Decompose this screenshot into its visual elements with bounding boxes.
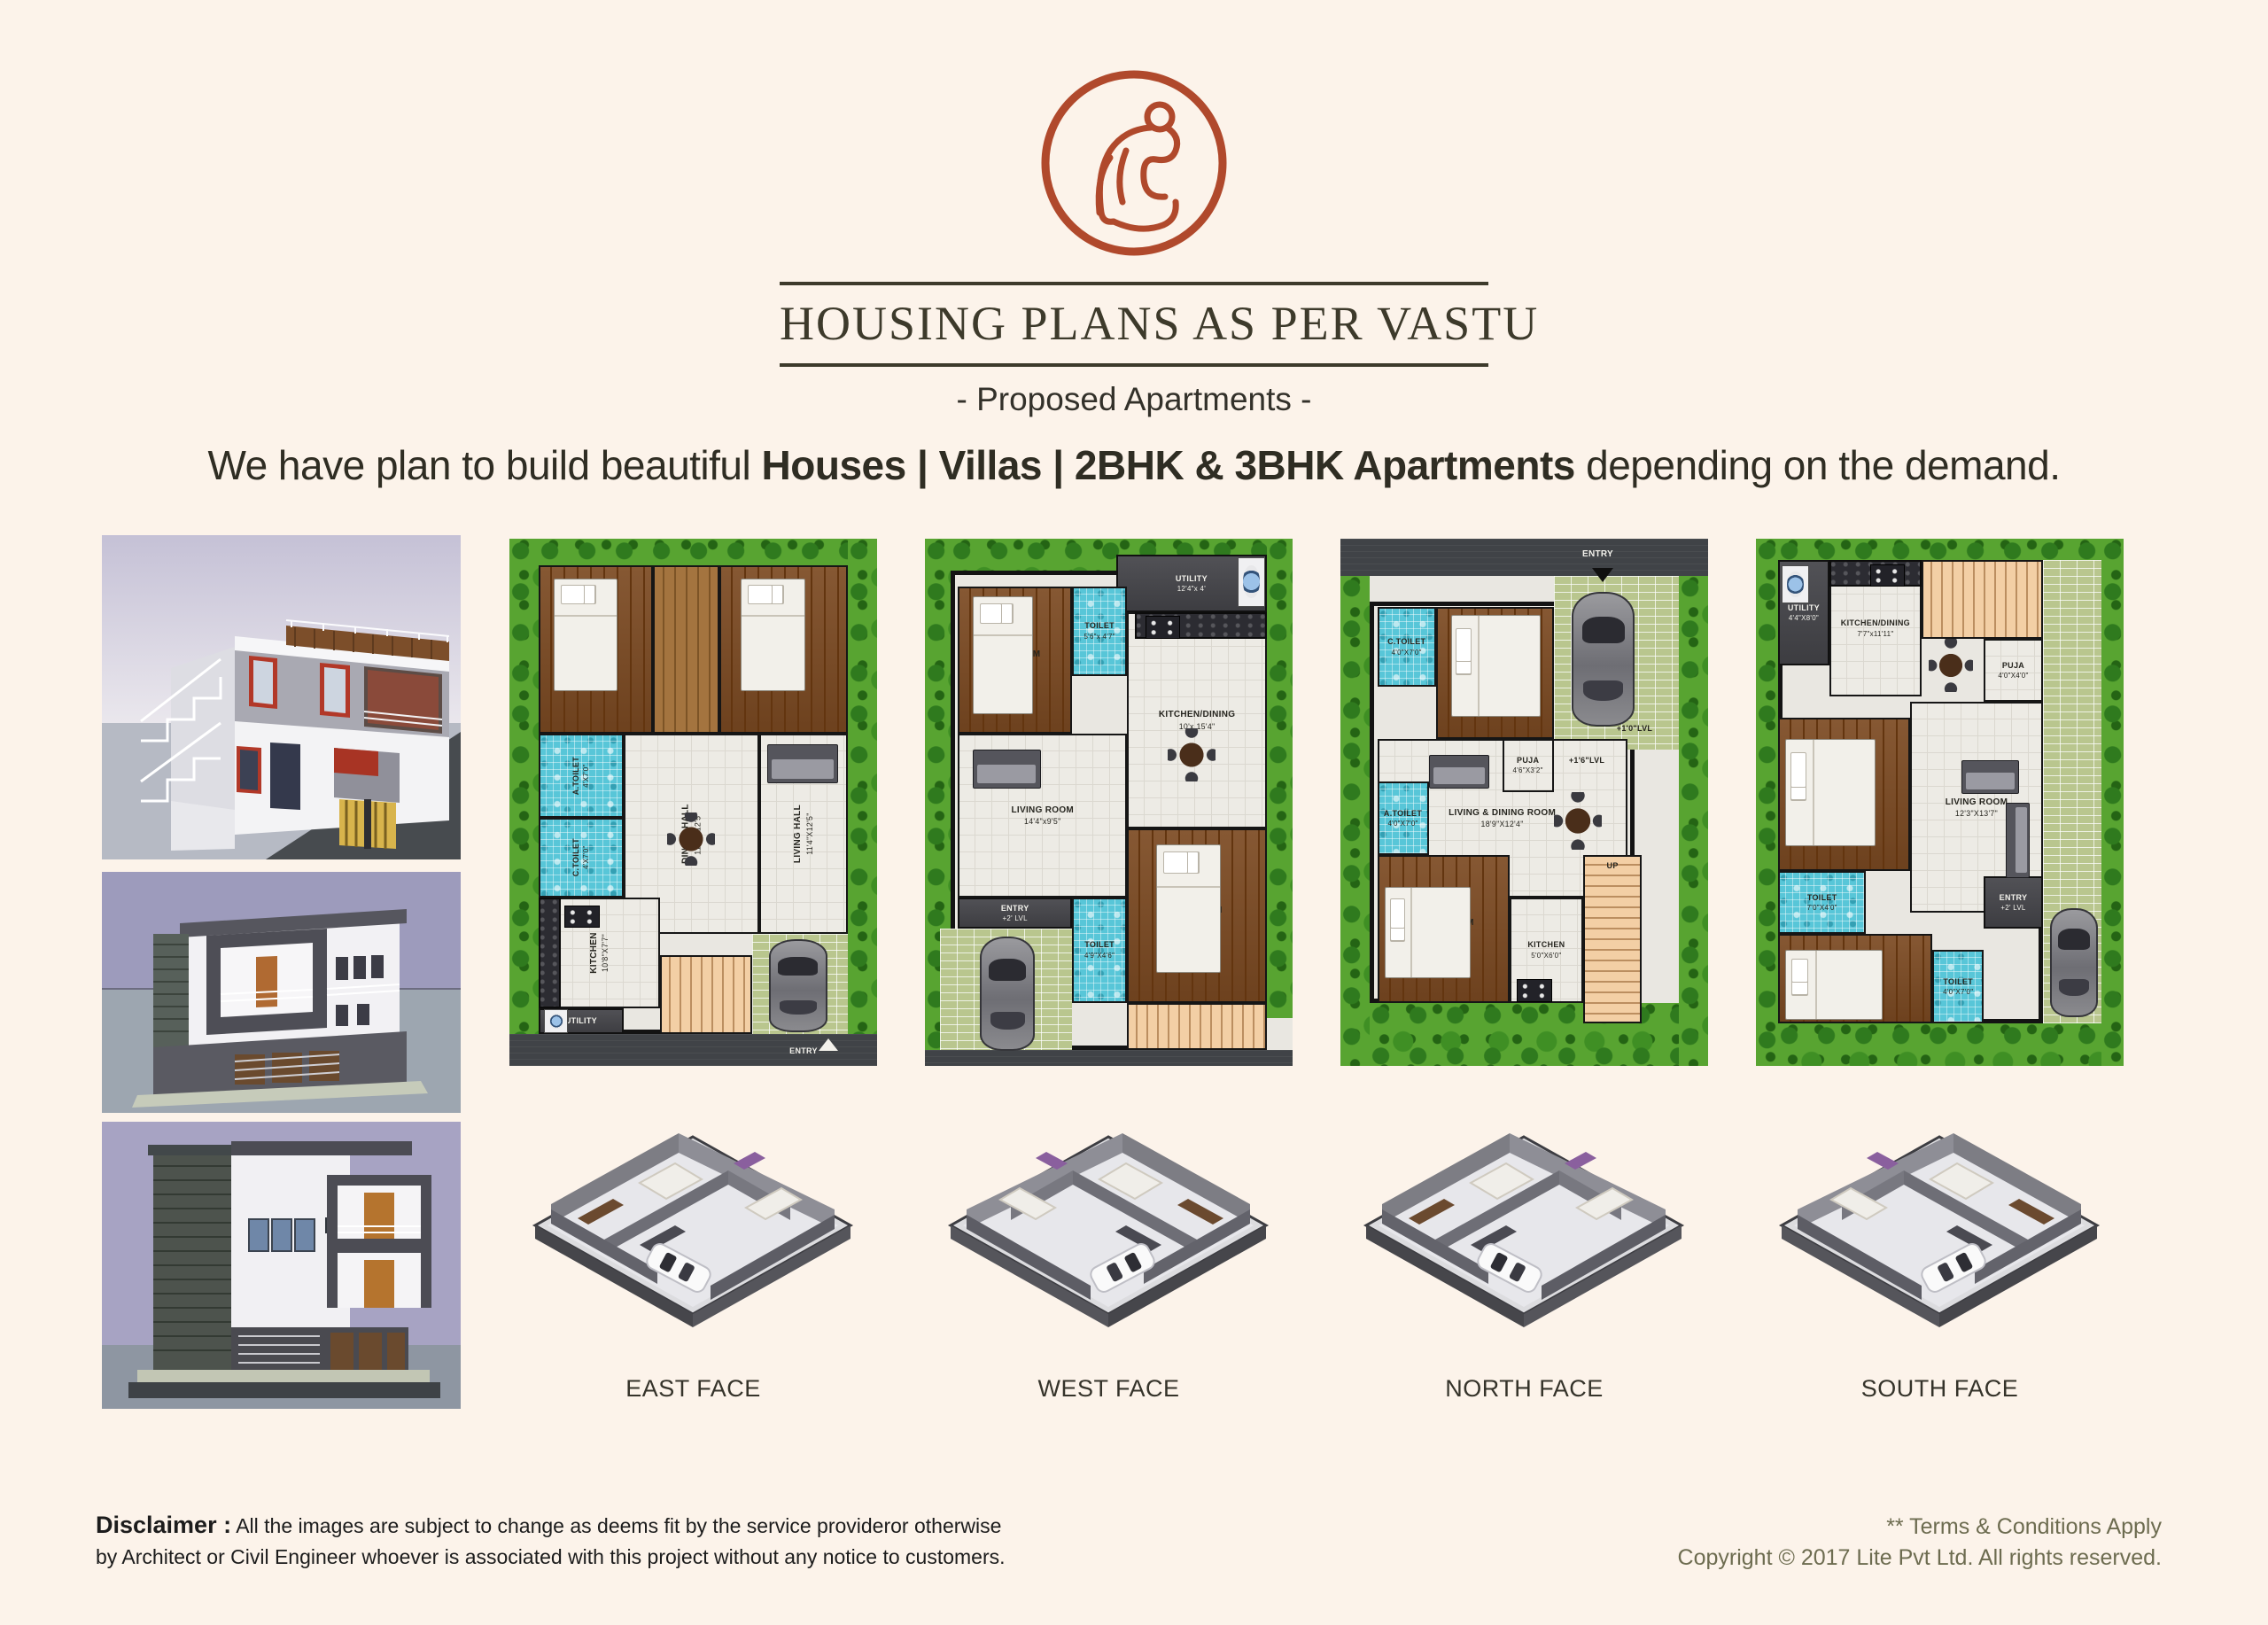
iso-3d-view-east <box>509 1107 877 1360</box>
plan-1-stairs-h <box>660 955 752 1034</box>
stove-icon <box>564 906 599 929</box>
plan-2-toilet: TOILET4'9"X4'6" <box>1072 898 1127 1003</box>
footer-legal: ** Terms & Conditions Apply Copyright © … <box>1678 1512 2162 1574</box>
bed-h-icon <box>1385 887 1471 978</box>
disclaimer: Disclaimer : All the images are subject … <box>96 1508 1141 1572</box>
wm-icon <box>1238 557 1265 607</box>
headline-suffix: depending on the demand. <box>1575 442 2061 488</box>
plan-3-entry: ENTRY <box>1568 544 1627 565</box>
sofa-h-icon <box>1961 760 2018 794</box>
plan-3-puja: PUJA4'6"X3'2" <box>1503 739 1554 792</box>
bed-v-icon <box>554 579 618 691</box>
iso-3d-view-north <box>1340 1107 1708 1360</box>
bed-v-icon <box>1156 844 1221 973</box>
sofa-v-icon <box>2006 803 2030 878</box>
page-title: HOUSING PLANS AS PER VASTU <box>780 296 1488 351</box>
plan-1-garden <box>539 539 848 565</box>
floor-plan-north-face: C.TOILET4'0"X7'0"BED ROOM12'8"X10'4"LIVI… <box>1340 539 1708 1066</box>
plan-3-a-toilet: A.TOILET4'0"X7'0" <box>1378 781 1429 855</box>
table-icon <box>1168 728 1216 781</box>
terms-note: ** Terms & Conditions Apply <box>1678 1512 2162 1543</box>
bed-v-icon <box>973 596 1033 714</box>
house-render-front-elevation <box>102 1122 461 1409</box>
bed-h-icon <box>1785 739 1876 846</box>
plan-3-garden <box>1340 576 1370 1066</box>
plan-2-stairs-h <box>1127 1003 1267 1051</box>
plan-4-puja: PUJA4'0"X4'0" <box>1984 639 2042 702</box>
plan-3-c-toilet: C.TOILET4'0"X7'0" <box>1378 607 1436 686</box>
bed-v-icon <box>741 579 805 691</box>
title-rule-bottom <box>780 363 1488 367</box>
house-render-side-view <box>102 872 461 1113</box>
plan-4-garden <box>2101 539 2124 1066</box>
plan-2-kitchen-dining: KITCHEN/DINING10'x 15'4" <box>1127 612 1267 828</box>
face-label-east: EAST FACE <box>509 1375 877 1403</box>
headline-prefix: We have plan to build beautiful <box>207 442 761 488</box>
stove-icon <box>1517 979 1551 1002</box>
plan-4-stairs-h <box>1922 560 2043 639</box>
table-icon <box>1554 792 1602 850</box>
plan-3-garden <box>1679 576 1708 1066</box>
iso-3d-view-west <box>925 1107 1293 1360</box>
plan-4-entry: ENTRY+2' LVL <box>1984 876 2042 929</box>
floor-plan-west-face: UTILITY12'4"x 4'BED ROOM12'4"x 10'TOILET… <box>925 539 1293 1066</box>
car-v-icon <box>980 937 1035 1051</box>
bed-h-icon <box>1451 615 1542 717</box>
sofa-h-icon <box>1429 755 1489 789</box>
arrow-up-icon <box>819 1038 838 1051</box>
plan-3--1-6-lvl: +1'6"LVL <box>1554 750 1620 771</box>
plan-4-toilet: TOILET4'0"X7'0" <box>1932 950 1984 1023</box>
disclaimer-line2: by Architect or Civil Engineer whoever i… <box>96 1545 1006 1568</box>
brochure-page: HOUSING PLANS AS PER VASTU - Proposed Ap… <box>0 0 2268 1625</box>
car-v-icon <box>1572 592 1634 727</box>
plan-2-toilet: TOILET5'6"x 4'7" <box>1072 587 1127 676</box>
car-v-icon <box>2050 908 2098 1017</box>
face-label-south: SOUTH FACE <box>1756 1375 2124 1403</box>
title-rule-top <box>780 282 1488 285</box>
plan-1-c-toilet: C.TOILET4'X7'0" <box>539 818 623 897</box>
car-v-icon <box>769 939 827 1032</box>
bed-h-icon <box>1785 950 1883 1020</box>
sofa-h-icon <box>767 744 839 783</box>
wm-icon <box>544 1009 568 1033</box>
plan-2-garden <box>1267 539 1293 1018</box>
page-subtitle: - Proposed Apartments - <box>780 381 1488 418</box>
plan-1-a-toilet: A.TOILET4'X7'0" <box>539 734 623 818</box>
floor-plan-east-face: M.BEDROOM11'X12'6"BEDROOM11'X12'0"A.TOIL… <box>509 539 877 1066</box>
face-label-north: NORTH FACE <box>1340 1375 1708 1403</box>
table-icon <box>1929 639 1973 692</box>
plan-4-garden <box>1778 1023 2101 1066</box>
disclaimer-line1: All the images are subject to change as … <box>231 1514 1001 1537</box>
floor-plan-south-face: UTILITY4'4"X8'0"KITCHEN/DINING7'7"x11'11… <box>1756 539 2124 1066</box>
vastu-purusha-logo-icon <box>1037 55 1231 276</box>
plan-2-road <box>925 1050 1293 1066</box>
plan-1-garden <box>848 539 877 1034</box>
disclaimer-label: Disclaimer : <box>96 1512 231 1538</box>
plan-1-garden <box>509 539 539 1034</box>
plan-4-toilet: TOILET7'0"X4'0" <box>1778 871 1867 934</box>
stove-icon <box>1870 564 1905 587</box>
plan-1-counter <box>539 898 561 1008</box>
title-block: HOUSING PLANS AS PER VASTU - Proposed Ap… <box>780 282 1488 418</box>
plan-4-garden <box>1778 539 2101 560</box>
arrow-down-icon <box>1592 568 1613 582</box>
stove-icon <box>1146 616 1180 639</box>
face-label-west: WEST FACE <box>925 1375 1293 1403</box>
sofa-h-icon <box>973 750 1041 789</box>
plan-2-entry: ENTRY+2' LVL <box>958 898 1072 929</box>
house-render-front-corner <box>102 535 461 859</box>
plan-3-road <box>1340 539 1708 576</box>
table-icon <box>667 812 715 866</box>
plan-1-woodl <box>653 565 719 734</box>
headline-bold: Houses | Villas | 2BHK & 3BHK Apartments <box>762 442 1575 488</box>
copyright-note: Copyright © 2017 Lite Pvt Ltd. All right… <box>1678 1543 2162 1574</box>
iso-3d-view-south <box>1756 1107 2124 1360</box>
headline: We have plan to build beautiful Houses |… <box>0 441 2268 489</box>
plan-3-up: UP <box>1583 850 1642 882</box>
wm-icon <box>1782 565 1809 604</box>
plan-4-garden <box>1756 539 1778 1066</box>
